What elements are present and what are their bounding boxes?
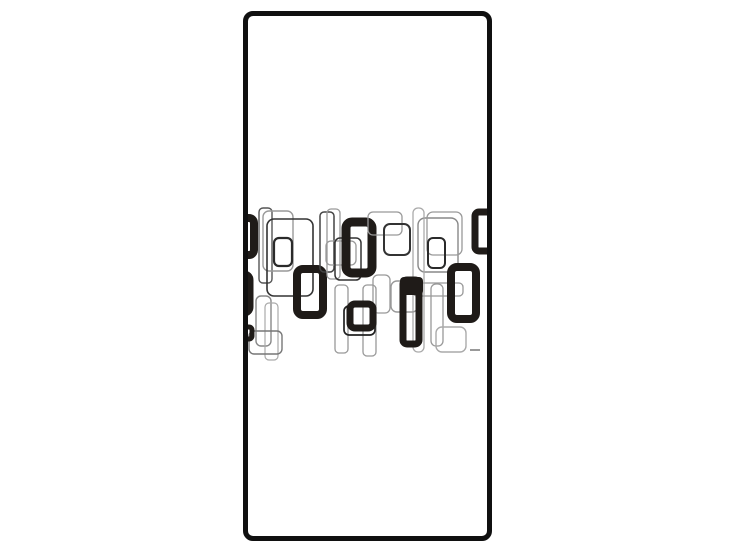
pattern-rect-ring: [248, 275, 249, 312]
pattern-rect-outline: [431, 284, 443, 346]
pattern-rect-ring: [475, 212, 487, 251]
pattern-rect-outline: [428, 238, 445, 268]
pattern-rect-outline: [259, 208, 272, 283]
pattern-rect-outline: [335, 285, 348, 353]
pattern-rect-outline: [326, 241, 356, 265]
pattern-rect-ring: [350, 304, 373, 328]
pattern-rect-outline: [436, 327, 466, 352]
product-panel: [243, 11, 492, 541]
image-canvas: [0, 0, 740, 555]
pattern-rect-ring: [297, 269, 323, 315]
pattern-rect-dash: [470, 349, 480, 351]
pattern-rect-ring: [248, 327, 252, 339]
pattern-rect-ring: [248, 218, 254, 255]
retro-rectangles-pattern: [248, 200, 487, 362]
pattern-rect-outline: [274, 238, 292, 266]
pattern-rect-outline: [384, 224, 410, 255]
